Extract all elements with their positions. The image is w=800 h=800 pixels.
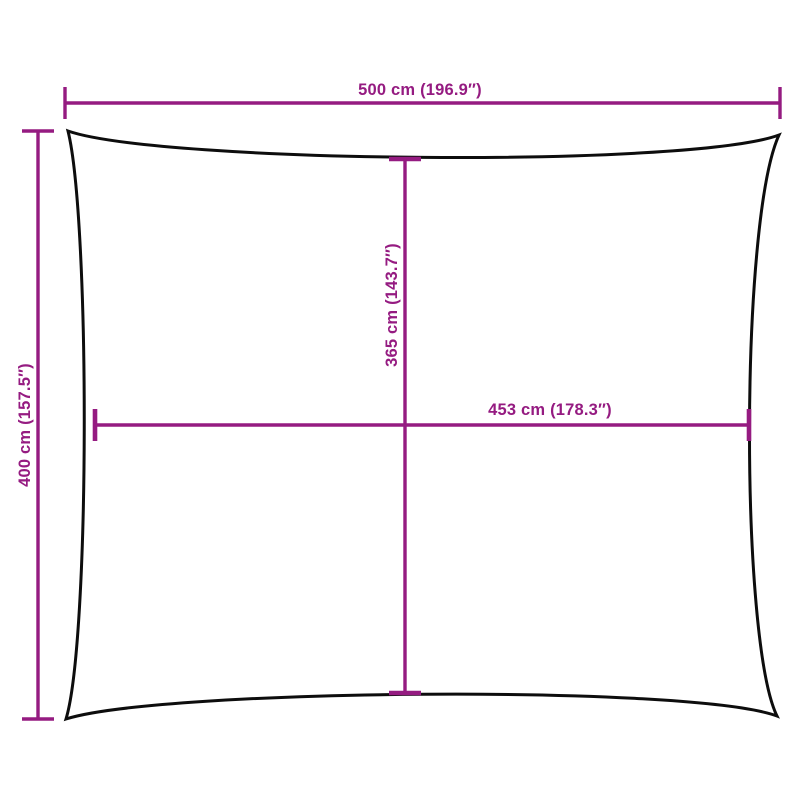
inner-width-label: 453 cm (178.3″) [488,401,612,419]
dimension-diagram: 500 cm (196.9″) 400 cm (157.5″) 365 cm (… [0,0,800,800]
top-width-label: 500 cm (196.9″) [358,81,482,99]
inner-height-label: 365 cm (143.7″) [383,243,401,367]
left-height-label: 400 cm (157.5″) [16,363,34,487]
diagram-canvas: 500 cm (196.9″) 400 cm (157.5″) 365 cm (… [0,0,800,800]
